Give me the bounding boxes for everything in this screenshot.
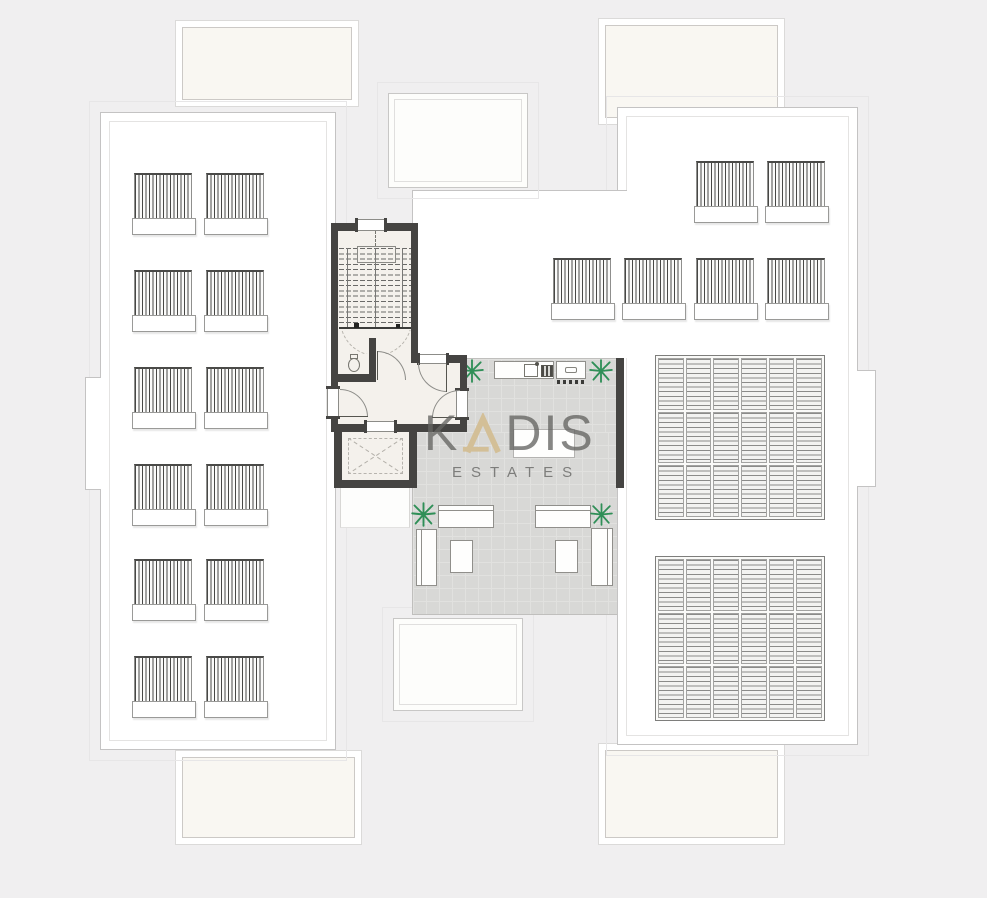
terrace-right-wall	[616, 358, 624, 488]
door-leaf	[377, 351, 378, 380]
watermark-letter-k: K	[424, 412, 459, 455]
toilet-icon	[348, 358, 360, 372]
pergola-unit	[134, 464, 192, 526]
stair-window	[356, 219, 386, 231]
pergola-base	[132, 218, 196, 235]
pergola-slats	[206, 270, 264, 316]
stair-arrow	[396, 324, 400, 328]
pergola-slats	[206, 367, 264, 413]
pergola-unit	[206, 173, 264, 235]
pergola-unit	[134, 173, 192, 235]
toilet-tank-icon	[350, 354, 358, 359]
pergola-slats	[134, 559, 192, 605]
coffee-table-right	[555, 540, 578, 573]
pergola-slats	[553, 258, 611, 304]
pergola-unit	[206, 367, 264, 429]
louvre-deck-upper	[655, 355, 825, 520]
bbq-knobs	[557, 380, 585, 384]
watermark-triangle-a-icon	[462, 413, 502, 455]
pergola-slats	[767, 161, 825, 207]
pergola-unit	[134, 559, 192, 621]
pergola-base	[132, 315, 196, 332]
grill-icon	[541, 365, 553, 377]
stair-stringer	[402, 248, 403, 327]
door-leaf	[446, 363, 447, 392]
pergola-base	[132, 604, 196, 621]
pergola-base	[694, 303, 758, 320]
pergola-base	[204, 604, 268, 621]
pergola-slats	[206, 559, 264, 605]
pergola-unit	[696, 161, 754, 223]
pergola-base	[204, 509, 268, 526]
pergola-slats	[767, 258, 825, 304]
left-wing-bump	[85, 377, 101, 490]
stair-arrow	[354, 323, 359, 328]
louvre-deck-lower	[655, 556, 825, 721]
watermark-letters-dis: DIS	[505, 412, 594, 455]
pergola-unit	[624, 258, 682, 320]
pergola-unit	[767, 258, 825, 320]
stair-stringer	[347, 248, 348, 327]
pergola-base	[204, 218, 268, 235]
pergola-slats	[134, 270, 192, 316]
faucet-icon	[535, 362, 539, 366]
watermark-subtitle: ESTATES	[452, 464, 581, 481]
door-jamb-elevator	[365, 421, 396, 432]
right-wing-bump	[857, 370, 876, 487]
stair-start-line	[339, 327, 411, 329]
sofa-right-group	[535, 505, 591, 528]
pergola-unit	[134, 656, 192, 718]
pergola-slats	[206, 656, 264, 702]
pergola-base	[204, 315, 268, 332]
pergola-unit	[206, 464, 264, 526]
plant-icon	[410, 501, 437, 528]
coffee-table-left	[450, 540, 473, 573]
pergola-slats	[134, 173, 192, 219]
pergola-base	[765, 206, 829, 223]
pergola-base	[622, 303, 686, 320]
bbq-icon	[565, 367, 577, 373]
door-leaf	[340, 416, 368, 417]
sofa-left-group	[438, 505, 494, 528]
pergola-base	[694, 206, 758, 223]
pergola-slats	[696, 161, 754, 207]
side-sofa-right	[591, 528, 613, 586]
stair-center-line	[375, 231, 376, 246]
side-sofa-left	[416, 529, 437, 586]
door-jamb-west	[327, 387, 339, 418]
balcony-top-left	[182, 27, 352, 100]
pergola-slats	[206, 173, 264, 219]
floor-plan-canvas: K DIS ESTATES	[0, 0, 987, 898]
pergola-unit	[553, 258, 611, 320]
pergola-slats	[624, 258, 682, 304]
pergola-unit	[767, 161, 825, 223]
plant-icon	[588, 358, 614, 384]
balcony-top-right	[605, 25, 778, 118]
skylight-bottom-center	[393, 618, 523, 711]
pergola-slats	[134, 464, 192, 510]
pergola-unit	[134, 270, 192, 332]
balcony-bottom-right	[605, 750, 778, 838]
pergola-unit	[134, 367, 192, 429]
pergola-slats	[134, 656, 192, 702]
pergola-unit	[696, 258, 754, 320]
pergola-base	[204, 701, 268, 718]
elevator-cross-icon	[348, 438, 403, 474]
balcony-bottom-left	[182, 757, 355, 838]
pergola-base	[551, 303, 615, 320]
pergola-unit	[206, 656, 264, 718]
pergola-slats	[696, 258, 754, 304]
wc-wall	[331, 374, 376, 382]
shaft-lower-outline	[340, 488, 410, 528]
skylight-top-center	[388, 93, 528, 188]
pergola-slats	[206, 464, 264, 510]
plant-icon	[589, 502, 614, 527]
pergola-unit	[206, 559, 264, 621]
pergola-base	[132, 701, 196, 718]
watermark-logo: K DIS	[424, 412, 595, 455]
pergola-slats	[134, 367, 192, 413]
pergola-base	[765, 303, 829, 320]
pergola-base	[132, 412, 196, 429]
stair-handrail	[357, 246, 396, 263]
core-wall	[411, 223, 418, 363]
pergola-base	[132, 509, 196, 526]
pergola-unit	[206, 270, 264, 332]
pergola-base	[204, 412, 268, 429]
